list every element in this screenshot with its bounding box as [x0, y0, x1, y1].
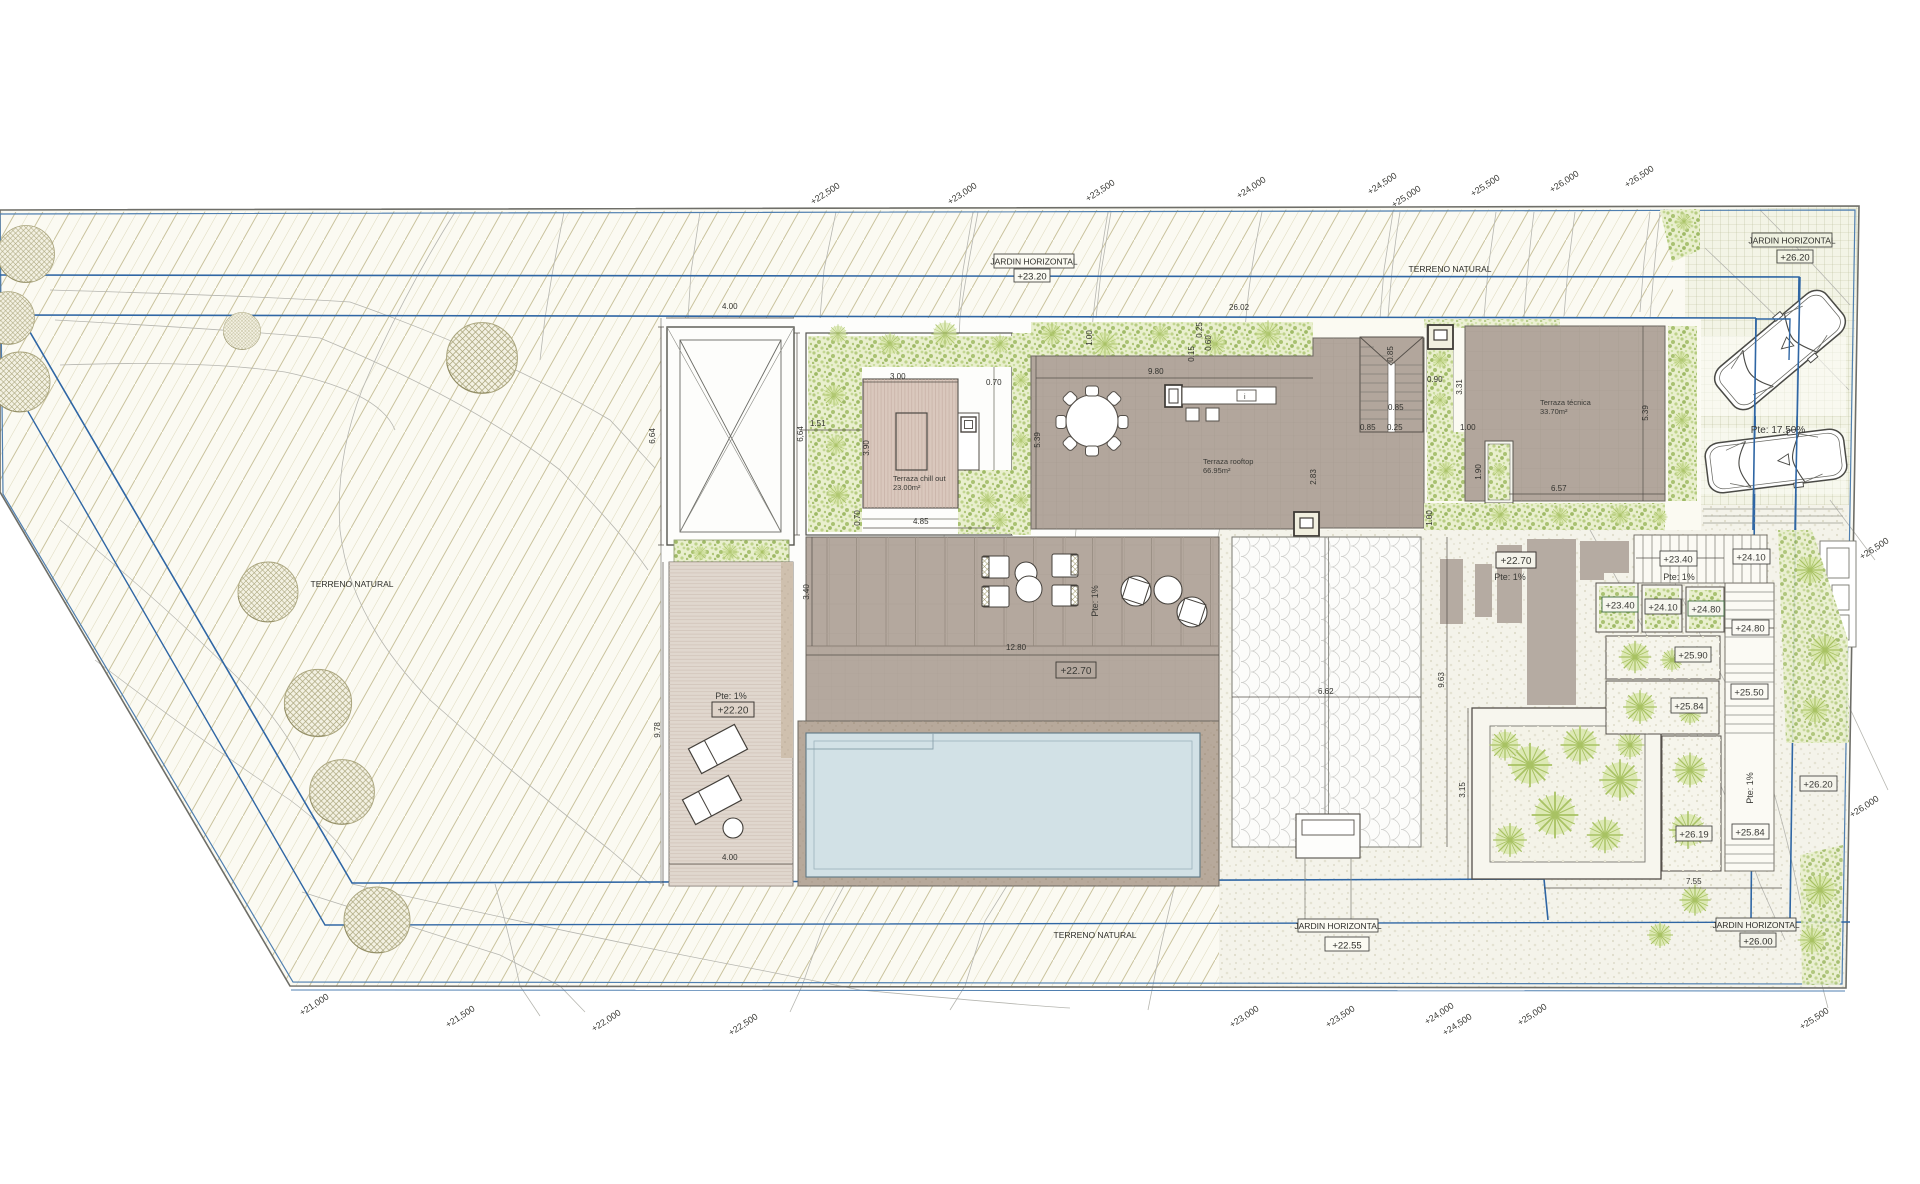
svg-text:1.51: 1.51 — [810, 419, 826, 428]
svg-text:3.40: 3.40 — [802, 584, 811, 600]
svg-text:+24.10: +24.10 — [1648, 603, 1677, 614]
svg-text:5.39: 5.39 — [1641, 405, 1650, 421]
svg-text:1.00: 1.00 — [1460, 423, 1476, 432]
svg-text:+24.10: +24.10 — [1736, 553, 1765, 564]
svg-text:+23.40: +23.40 — [1663, 555, 1692, 566]
svg-text:+25.84: +25.84 — [1674, 702, 1703, 713]
svg-text:Terraza rooftop: Terraza rooftop — [1203, 457, 1253, 466]
svg-text:+26.20: +26.20 — [1780, 253, 1809, 264]
svg-text:+23.20: +23.20 — [1017, 272, 1046, 283]
svg-text:+26.20: +26.20 — [1803, 780, 1832, 791]
svg-text:0.15: 0.15 — [1187, 346, 1196, 362]
svg-text:Pte: 1%: Pte: 1% — [715, 691, 747, 701]
svg-text:Pte: 1%: Pte: 1% — [1090, 585, 1100, 617]
svg-text:3.00: 3.00 — [890, 372, 906, 381]
svg-text:+22.70: +22.70 — [1061, 666, 1092, 677]
svg-text:4.85: 4.85 — [913, 517, 929, 526]
svg-text:0.90: 0.90 — [1427, 375, 1443, 384]
svg-text:Pte: 1%: Pte: 1% — [1745, 772, 1755, 804]
svg-text:1.00: 1.00 — [1425, 510, 1434, 526]
svg-text:4.00: 4.00 — [722, 302, 738, 311]
svg-text:1.00: 1.00 — [1085, 330, 1094, 346]
svg-text:0.70: 0.70 — [853, 510, 862, 526]
svg-text:+25.90: +25.90 — [1678, 651, 1707, 662]
svg-text:+22.55: +22.55 — [1332, 941, 1361, 952]
svg-text:TERRENO NATURAL: TERRENO NATURAL — [311, 579, 394, 589]
svg-text:+25.84: +25.84 — [1735, 828, 1764, 839]
svg-text:Terraza técnica: Terraza técnica — [1540, 398, 1592, 407]
svg-text:26.02: 26.02 — [1229, 303, 1250, 312]
svg-text:0.85: 0.85 — [1360, 423, 1376, 432]
svg-text:6.62: 6.62 — [1318, 687, 1334, 696]
svg-text:6.57: 6.57 — [1551, 484, 1567, 493]
svg-text:0.85: 0.85 — [1386, 346, 1395, 362]
svg-text:0.70: 0.70 — [986, 378, 1002, 387]
svg-text:12.80: 12.80 — [1006, 643, 1027, 652]
svg-text:JARDIN HORIZONTAL: JARDIN HORIZONTAL — [1748, 236, 1835, 246]
svg-text:+26.19: +26.19 — [1679, 830, 1708, 841]
svg-text:Terraza chill out: Terraza chill out — [893, 474, 946, 483]
svg-text:6,64: 6,64 — [648, 428, 657, 444]
svg-text:0.25: 0.25 — [1195, 322, 1204, 338]
svg-text:+26.00: +26.00 — [1743, 937, 1772, 948]
svg-text:+24.80: +24.80 — [1691, 605, 1720, 616]
svg-text:2.83: 2.83 — [1309, 469, 1318, 485]
svg-text:23.00m²: 23.00m² — [893, 483, 921, 492]
svg-text:9.78: 9.78 — [653, 722, 662, 738]
svg-text:1.90: 1.90 — [1474, 464, 1483, 480]
svg-text:3.90: 3.90 — [862, 440, 871, 456]
svg-text:+25.50: +25.50 — [1734, 688, 1763, 699]
svg-text:9.80: 9.80 — [1148, 367, 1164, 376]
svg-text:JARDIN HORIZONTAL: JARDIN HORIZONTAL — [1294, 921, 1381, 931]
svg-text:0.60: 0.60 — [1204, 335, 1213, 351]
svg-text:9.63: 9.63 — [1437, 672, 1446, 688]
svg-text:+24.80: +24.80 — [1735, 624, 1764, 635]
svg-text:JARDIN HORIZONTAL: JARDIN HORIZONTAL — [990, 257, 1077, 267]
svg-text:0.25: 0.25 — [1387, 423, 1403, 432]
svg-text:TERRENO NATURAL: TERRENO NATURAL — [1054, 930, 1137, 940]
svg-text:+22.20: +22.20 — [718, 706, 749, 717]
svg-text:Pte: 1%: Pte: 1% — [1663, 572, 1695, 582]
svg-text:4.00: 4.00 — [722, 853, 738, 862]
svg-text:0.85: 0.85 — [1388, 403, 1404, 412]
svg-text:7.55: 7.55 — [1686, 877, 1702, 886]
svg-text:JARDIN HORIZONTAL: JARDIN HORIZONTAL — [1712, 920, 1799, 930]
svg-text:33.70m²: 33.70m² — [1540, 407, 1568, 416]
svg-text:Pte: 1%: Pte: 1% — [1494, 572, 1526, 582]
svg-text:+23.40: +23.40 — [1605, 601, 1634, 612]
svg-text:+22.70: +22.70 — [1501, 556, 1532, 567]
svg-text:3.15: 3.15 — [1458, 782, 1467, 798]
svg-text:5.39: 5.39 — [1033, 432, 1042, 448]
svg-text:Pte: 17.50%: Pte: 17.50% — [1751, 425, 1806, 436]
svg-text:66.95m²: 66.95m² — [1203, 466, 1231, 475]
svg-text:6,64: 6,64 — [796, 426, 805, 442]
svg-text:3.31: 3.31 — [1455, 379, 1464, 395]
svg-text:TERRENO NATURAL: TERRENO NATURAL — [1409, 264, 1492, 274]
